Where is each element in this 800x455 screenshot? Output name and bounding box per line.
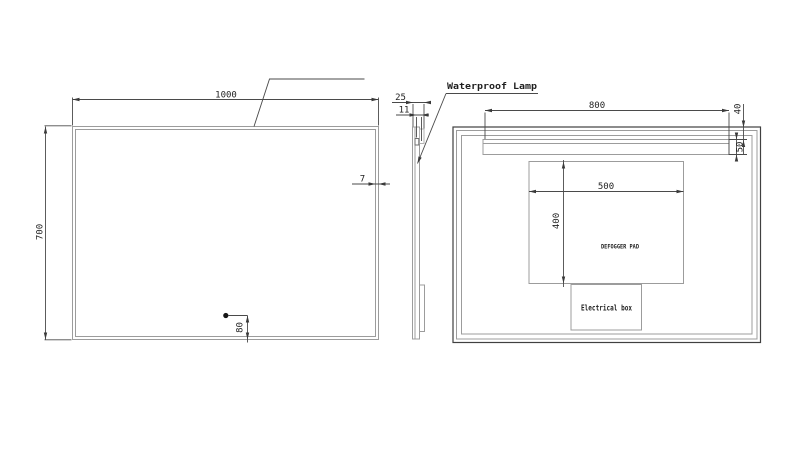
dim-side-lamp-depth-label: 11	[399, 106, 410, 116]
dim-sensor-offset-label: 80	[236, 322, 246, 333]
dim-frame-thickness-label: 7	[360, 175, 365, 185]
dim-pad-height-label: 400	[552, 213, 562, 229]
touch-sensor-dot	[223, 313, 228, 318]
electrical-box-label: Electrical box	[581, 303, 632, 313]
dim-lamp-top-offset-label: 40	[734, 104, 744, 115]
dim-lamp-width-label: 800	[589, 101, 605, 111]
defogger-pad-label: DEFOGGER PAD	[601, 244, 639, 251]
dim-front-width-label: 1000	[215, 91, 237, 101]
dim-front-height-label: 700	[36, 224, 46, 240]
dim-lamp-height-label: 50	[736, 142, 746, 153]
mirror-drawing: 1000 700 7 80	[0, 0, 800, 455]
dim-pad-width-label: 500	[598, 182, 614, 192]
dim-side-depth-label: 25	[395, 93, 406, 103]
technical-drawing-canvas: 1000 700 7 80	[0, 0, 800, 455]
drawing-background	[0, 0, 800, 455]
waterproof-lamp-label: Waterproof Lamp	[447, 82, 538, 92]
